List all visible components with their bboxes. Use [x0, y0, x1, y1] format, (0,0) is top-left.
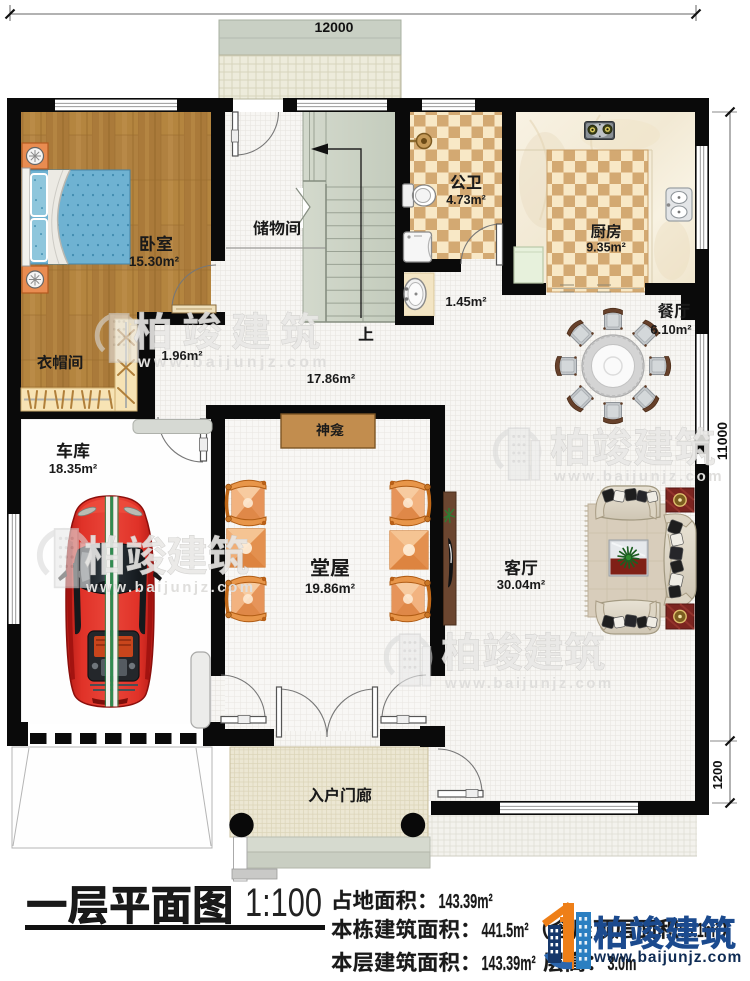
- svg-text:4.73m²: 4.73m²: [446, 193, 486, 207]
- svg-text:18.35m²: 18.35m²: [49, 461, 98, 476]
- svg-text:19.86m²: 19.86m²: [305, 581, 356, 596]
- svg-text:12000: 12000: [315, 19, 354, 35]
- svg-text:1.45m²: 1.45m²: [445, 294, 487, 309]
- svg-text:www.baijunjz.com: www.baijunjz.com: [553, 468, 724, 485]
- svg-text:1.96m²: 1.96m²: [161, 348, 203, 363]
- svg-text:www.baijunjz.com: www.baijunjz.com: [444, 675, 614, 692]
- svg-text:9.35m²: 9.35m²: [586, 241, 626, 255]
- svg-text:30.04m²: 30.04m²: [497, 577, 546, 592]
- svg-text:15.30m²: 15.30m²: [129, 254, 180, 269]
- svg-text:www.baijunjz.com: www.baijunjz.com: [593, 949, 742, 966]
- svg-text:11000: 11000: [714, 422, 730, 460]
- svg-text:www.baijunjz.com: www.baijunjz.com: [85, 579, 256, 596]
- svg-text:143.39m²: 143.39m²: [482, 953, 536, 975]
- svg-text:1:100: 1:100: [245, 881, 322, 925]
- svg-text:17.86m²: 17.86m²: [307, 371, 356, 386]
- svg-text:143.39m²: 143.39m²: [439, 891, 493, 913]
- svg-text:6.10m²: 6.10m²: [650, 322, 692, 337]
- svg-text:441.5m²: 441.5m²: [482, 920, 529, 942]
- svg-text:1200: 1200: [710, 761, 725, 790]
